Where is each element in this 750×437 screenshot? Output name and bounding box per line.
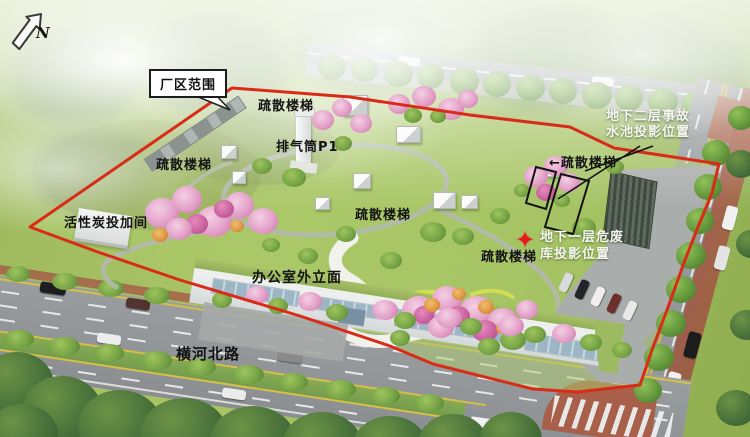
boundary-tag-text: 厂区范围 [160,74,216,93]
label-evac-center: 疏散楼梯 [355,209,411,223]
label-evac-bottom: 疏散楼梯 [481,251,537,265]
label-evac-left: 疏散楼梯 [156,159,212,173]
label-office-facade: 办公室外立面 [252,271,342,286]
label-evac-right: ←疏散楼梯 [549,157,617,171]
label-road-name: 横河北路 [176,346,240,363]
site-rendering: N 厂区范围 疏散楼梯 排气筒P1 疏散楼梯 活性炭投加间 疏散楼梯 疏散楼梯 … [0,0,750,437]
pool-callout-lines [558,146,653,199]
label-carbon-room: 活性炭投加间 [64,217,148,231]
label-hazwaste-line1: 地下一层危废 [540,231,624,245]
label-stack: 排气筒P1 [276,141,339,155]
label-evac-top: 疏散楼梯 [258,100,314,114]
label-hazwaste-line2: 库投影位置 [540,248,610,262]
label-pool-line2: 水池投影位置 [606,126,690,140]
north-label: N [36,24,50,42]
label-pool-line1: 地下二层事故 [606,110,690,124]
boundary-tag: 厂区范围 [149,69,227,98]
